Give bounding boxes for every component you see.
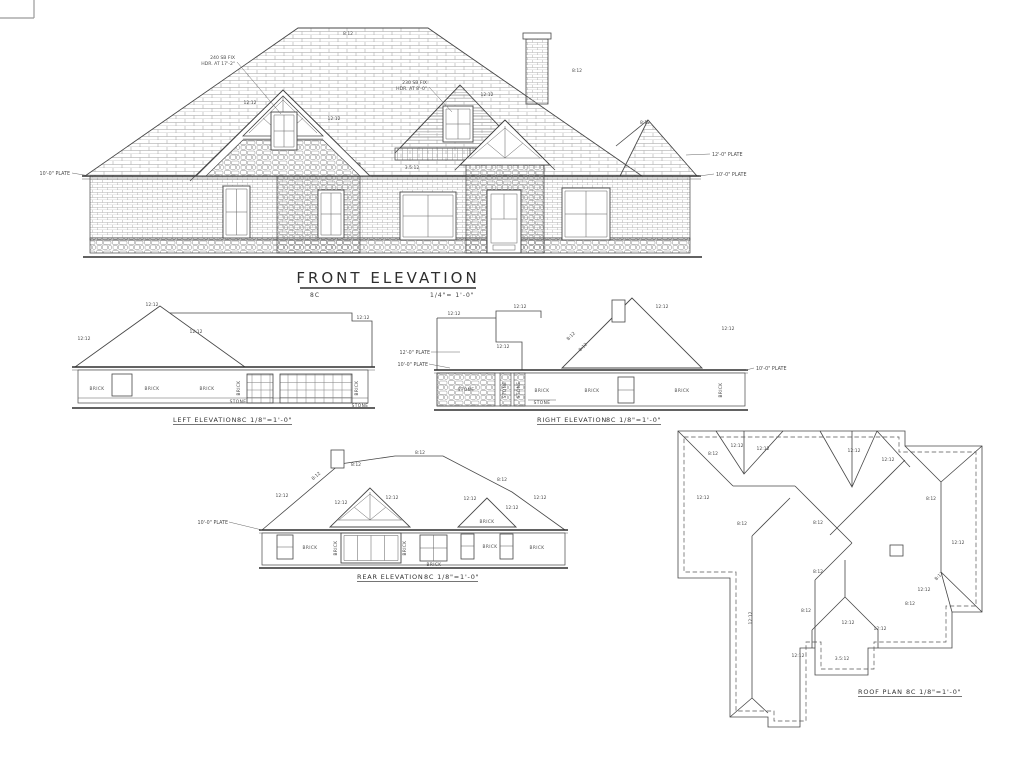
scale-label: 8C 1/8"=1'-0" [606,416,661,424]
pitch-label: 12:12 [848,448,861,454]
plate-label: 10'-0" PLATE [756,366,786,372]
pitch-label: 12:12 [722,326,735,332]
blueprint-drawing: 8:12 12:12 12:12 12:12 8:12 8:12 3.5:12 … [0,0,1024,767]
pitch-label: 8:12 [708,451,718,457]
scale-label: 8C 1/8"=1'-0" [424,573,479,581]
roof-plan-drawing: 8:12 12:12 12:12 12:12 12:12 12:12 8:12 … [678,431,982,727]
svg-text:LEFT ELEVATION: LEFT ELEVATION [173,416,237,424]
material-label: BRICK [529,545,544,551]
pitch-label: 3.5:12 [405,165,420,171]
pitch-label: 12:12 [697,495,710,501]
pitch-label: 8:12 [813,520,823,526]
material-label: STONE [516,382,522,399]
svg-text:FRONT ELEVATION: FRONT ELEVATION [296,269,479,287]
pitch-label: 12:12 [357,315,370,321]
material-label: BRICK [89,386,104,392]
pitch-label: 8:12 [737,521,747,527]
front-elevation-title: FRONT ELEVATION 8C 1/4"= 1'-0" [296,269,479,299]
material-label: BRICK [482,544,497,550]
svg-text:230 SB FIX: 230 SB FIX [402,80,427,86]
sheet-tag: 8C [310,292,320,299]
left-elevation-title: LEFT ELEVATION 8C 1/8"=1'-0" [173,416,292,425]
blueprint-sheet: 8:12 12:12 12:12 12:12 8:12 8:12 3.5:12 … [0,0,1024,767]
plate-label: 10'-0" PLATE [716,172,746,178]
pitch-label: 12:12 [78,336,91,342]
material-label: BRICK [302,545,317,551]
material-label: BRICK [144,386,159,392]
material-label: BRICK [534,388,549,394]
right-elevation-drawing: 12:12 12:12 12:12 8:12 8:12 12:12 12:12 … [398,298,787,425]
pitch-label: 12:12 [514,304,527,310]
plate-label: 12'-0" PLATE [400,350,430,356]
pitch-label: 12:12 [952,540,965,546]
pitch-label: 12:12 [842,620,855,626]
pitch-label: 8:12 [566,331,577,342]
pitch-label: 12:12 [244,100,257,106]
pitch-label: 12:12 [335,500,348,506]
svg-text:ROOF PLAN: ROOF PLAN [858,688,903,696]
left-walls [78,370,368,403]
scale-label: 8C 1/8"=1'-0" [237,416,292,424]
sheet-border-marks [0,0,34,18]
window [112,374,132,396]
svg-text:HDR. AT 8'-0": HDR. AT 8'-0" [396,86,427,92]
chimney [612,300,625,322]
chimney [890,545,903,556]
material-label: BRICK [354,380,360,395]
pitch-label: 8:12 [813,569,823,575]
front-chimney [523,33,551,104]
chimney [331,450,344,468]
pitch-label: 8:12 [905,601,915,607]
pitch-label: 12:12 [534,495,547,501]
garage-door [280,374,352,403]
front-elevation-drawing: 8:12 12:12 12:12 12:12 8:12 8:12 3.5:12 … [40,28,747,299]
pitch-label: 12:12 [792,653,805,659]
pitch-label: 12:12 [146,302,159,308]
svg-text:240 SB FIX: 240 SB FIX [210,55,235,61]
svg-text:HDR. AT 17'-2": HDR. AT 17'-2" [201,61,235,67]
pitch-label: 12:12 [386,495,399,501]
pitch-label: 12:12 [497,344,510,350]
pitch-label: 8:12 [572,68,582,74]
pitch-label: 12:12 [464,496,477,502]
garage-door [247,374,273,403]
pitch-label: 8:12 [926,496,936,502]
left-elevation-drawing: 12:12 12:12 12:12 12:12 BRICK BRICK BRIC… [72,302,375,425]
pitch-label: 12:12 [656,304,669,310]
pitch-label: 8:12 [343,31,353,37]
material-label: BRICK [479,519,494,525]
pitch-label: 12:12 [481,92,494,98]
plate-label: 10'-0" PLATE [398,362,428,368]
front-roof [82,28,701,179]
left-roof [72,306,375,370]
pitch-label: 3.5:12 [835,656,850,662]
svg-text:REAR ELEVATION: REAR ELEVATION [357,573,424,581]
pitch-label: 12:12 [757,446,770,452]
pitch-label: 12:12 [448,311,461,317]
material-label: BRICK [199,386,214,392]
material-label: BRICK [674,388,689,394]
material-label: BRICK [718,382,724,397]
pitch-label: 8:12 [640,120,650,126]
material-label: BRICK [584,388,599,394]
pitch-label: 12:12 [874,626,887,632]
material-label: BRICK [426,562,441,568]
pitch-label: 12:12 [748,611,754,624]
pitch-label: 12:12 [276,493,289,499]
material-label: STONE [352,403,369,409]
roof-plan-pitch-labels: 8:12 12:12 12:12 12:12 12:12 12:12 8:12 … [697,443,965,662]
pitch-label: 12:12 [882,457,895,463]
pitch-label: 12:12 [190,329,203,335]
pitch-label: 12:12 [506,505,519,511]
material-label: BRICK [333,540,339,555]
scale-label: 8C 1/8"=1'-0" [906,688,961,696]
rear-pitch-labels: 8:12 8:12 8:12 8:12 12:12 12:12 12:12 12… [276,450,547,511]
roof-plan-ridges [678,431,982,717]
scale-label: 1/4"= 1'-0" [430,292,475,299]
rear-elevation-title: REAR ELEVATION 8C 1/8"=1'-0" [357,573,479,582]
pitch-label: 12:12 [328,116,341,122]
material-label: STONE [230,399,247,405]
material-label: STONE [458,387,475,393]
rear-roof [259,450,568,533]
svg-text:RIGHT ELEVATION: RIGHT ELEVATION [537,416,607,424]
material-label: STONE [534,400,551,406]
patio-doors [341,533,401,563]
front-door [487,190,521,253]
pitch-label: 8:12 [801,608,811,614]
rear-right-gable: BRICK [458,498,516,527]
roof-overhang-dashed [684,437,976,721]
plate-label: 10'-0" PLATE [40,171,70,177]
plate-label: 12'-0" PLATE [712,152,742,158]
material-label: STONE [502,382,508,399]
roof-plan-title: ROOF PLAN 8C 1/8"=1'-0" [858,688,962,697]
material-label: BRICK [402,540,408,555]
rear-elevation-drawing: BRICK 8:12 8:12 8:12 8:12 12:12 12:12 12… [198,450,568,582]
right-elevation-title: RIGHT ELEVATION 8C 1/8"=1'-0" [537,416,661,425]
plate-label: 10'-0" PLATE [198,520,228,526]
material-label: BRICK [236,380,242,395]
pitch-label: 8:12 [415,450,425,456]
pitch-label: 12:12 [918,587,931,593]
pitch-label: 8:12 [497,477,507,483]
right-roof [434,298,748,373]
pitch-label: 8:12 [351,462,361,468]
rear-plate-callout: 10'-0" PLATE [198,520,262,530]
pitch-label: 12:12 [731,443,744,449]
